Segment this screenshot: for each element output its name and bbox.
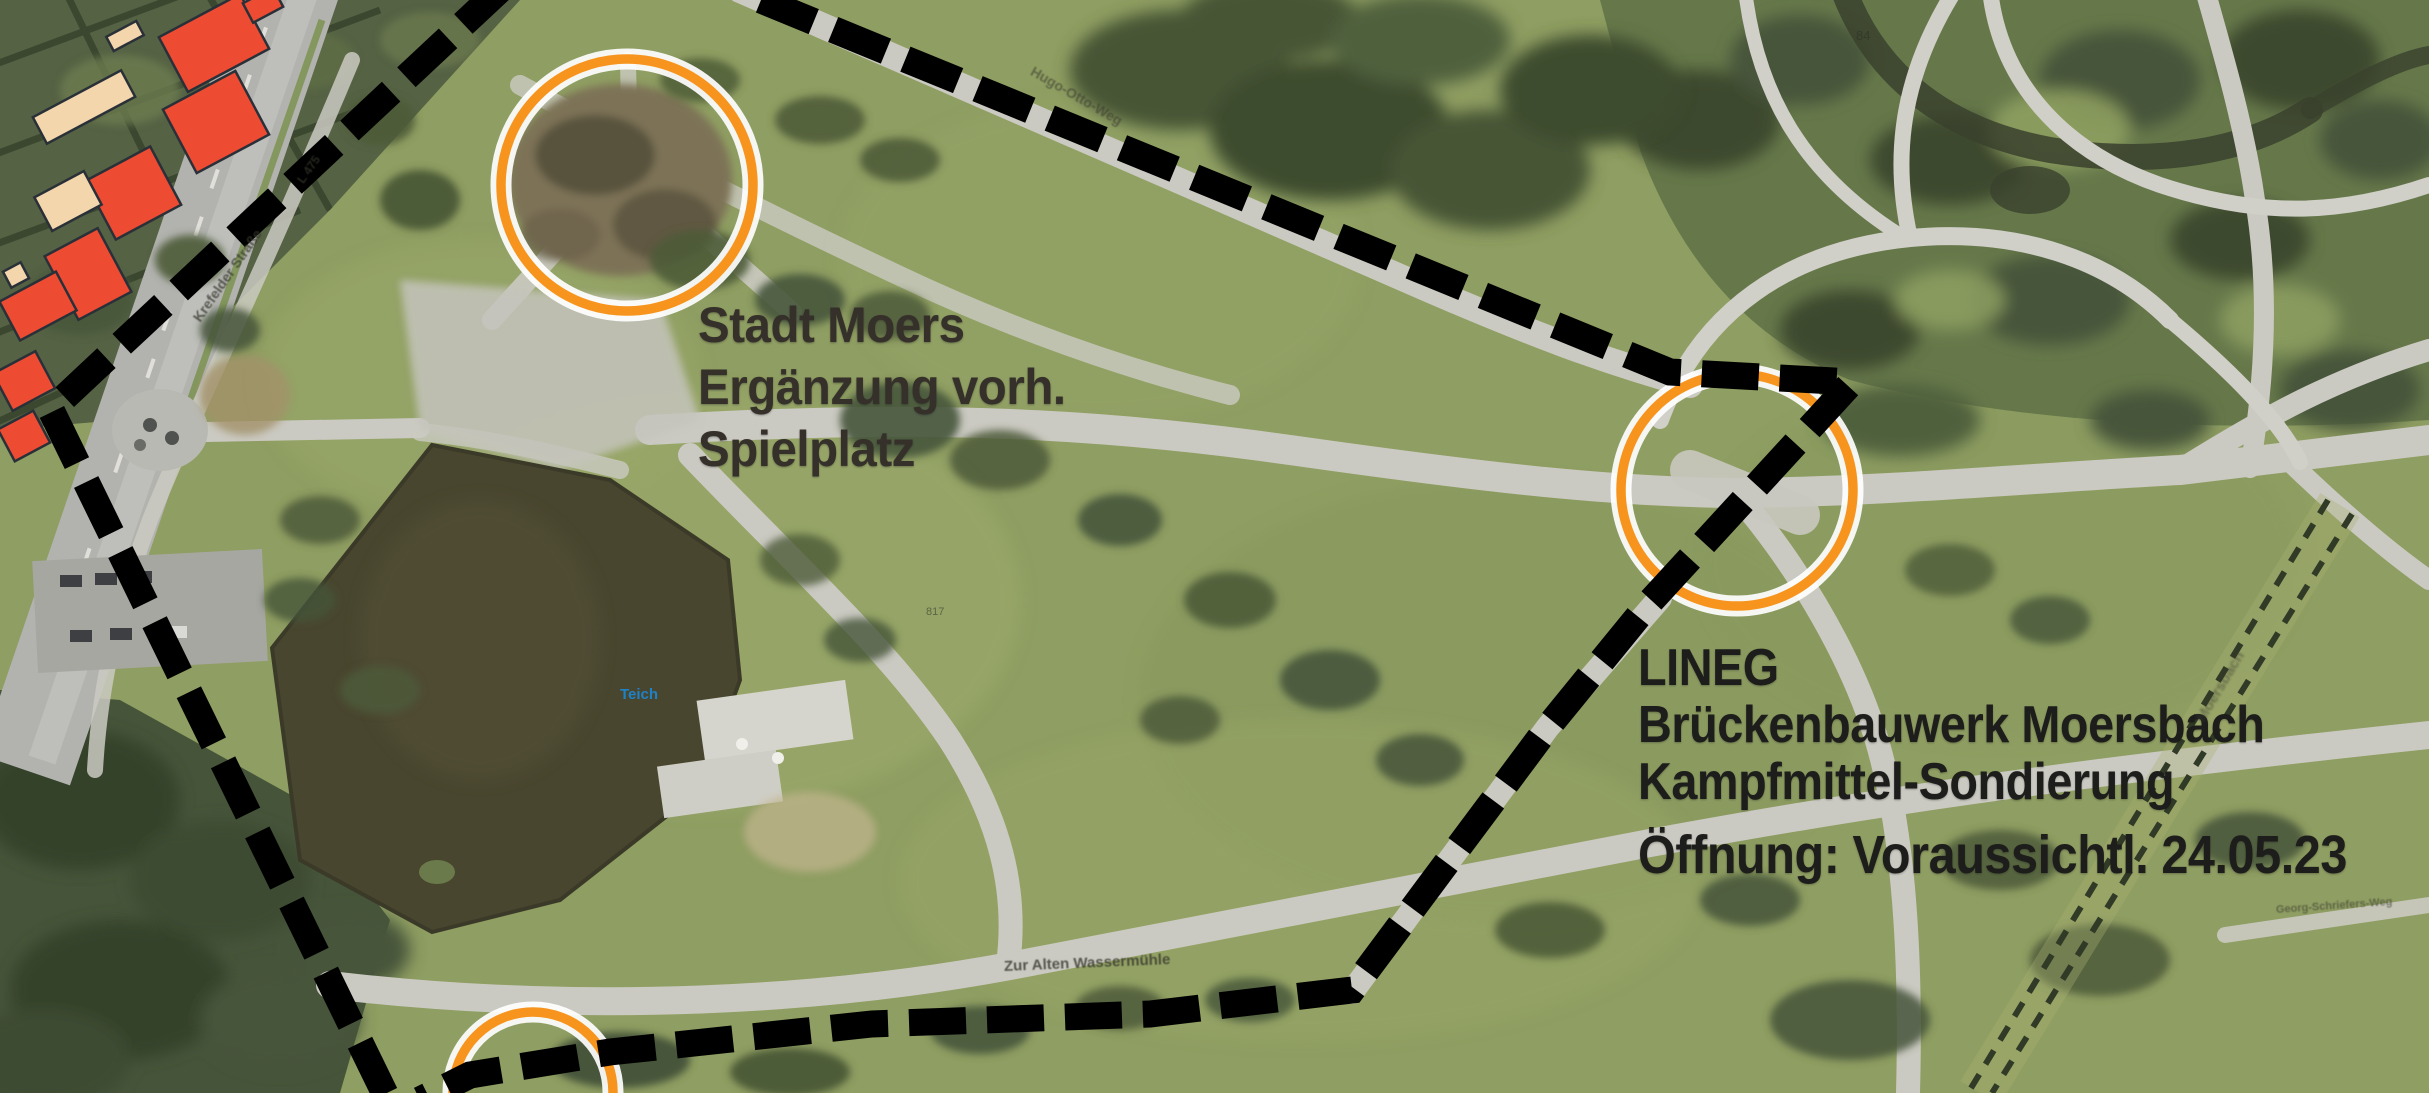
small-pond <box>1990 166 2070 214</box>
parking-lot <box>32 549 268 673</box>
aerial-basemap <box>0 0 2429 1093</box>
annotation-spielplatz: Stadt Moers Ergänzung vorh. Spielplatz <box>698 294 1066 480</box>
dirt-patch <box>200 355 290 435</box>
roundabout-plaza <box>112 389 208 471</box>
annotation-spielplatz-line2: Ergänzung vorh. <box>698 356 1066 418</box>
parcel-number-817: 817 <box>926 606 944 618</box>
annotation-lineg-line2: Brückenbauwerk Moersbach <box>1638 697 2347 754</box>
annotation-spielplatz-line3: Spielplatz <box>698 418 1066 480</box>
annotation-lineg: LINEG Brückenbauwerk Moersbach Kampfmitt… <box>1638 640 2347 885</box>
aerial-map-view: Stadt Moers Ergänzung vorh. Spielplatz L… <box>0 0 2429 1093</box>
annotation-lineg-line3: Kampfmittel-Sondierung <box>1638 754 2347 811</box>
pond-label-teich: Teich <box>620 686 658 703</box>
annotation-lineg-schedule: Öffnung: Voraussichtl. 24.05.23 <box>1638 825 2347 885</box>
annotation-spielplatz-line1: Stadt Moers <box>698 294 1066 356</box>
parcel-number-84: 84 <box>1856 28 1870 43</box>
